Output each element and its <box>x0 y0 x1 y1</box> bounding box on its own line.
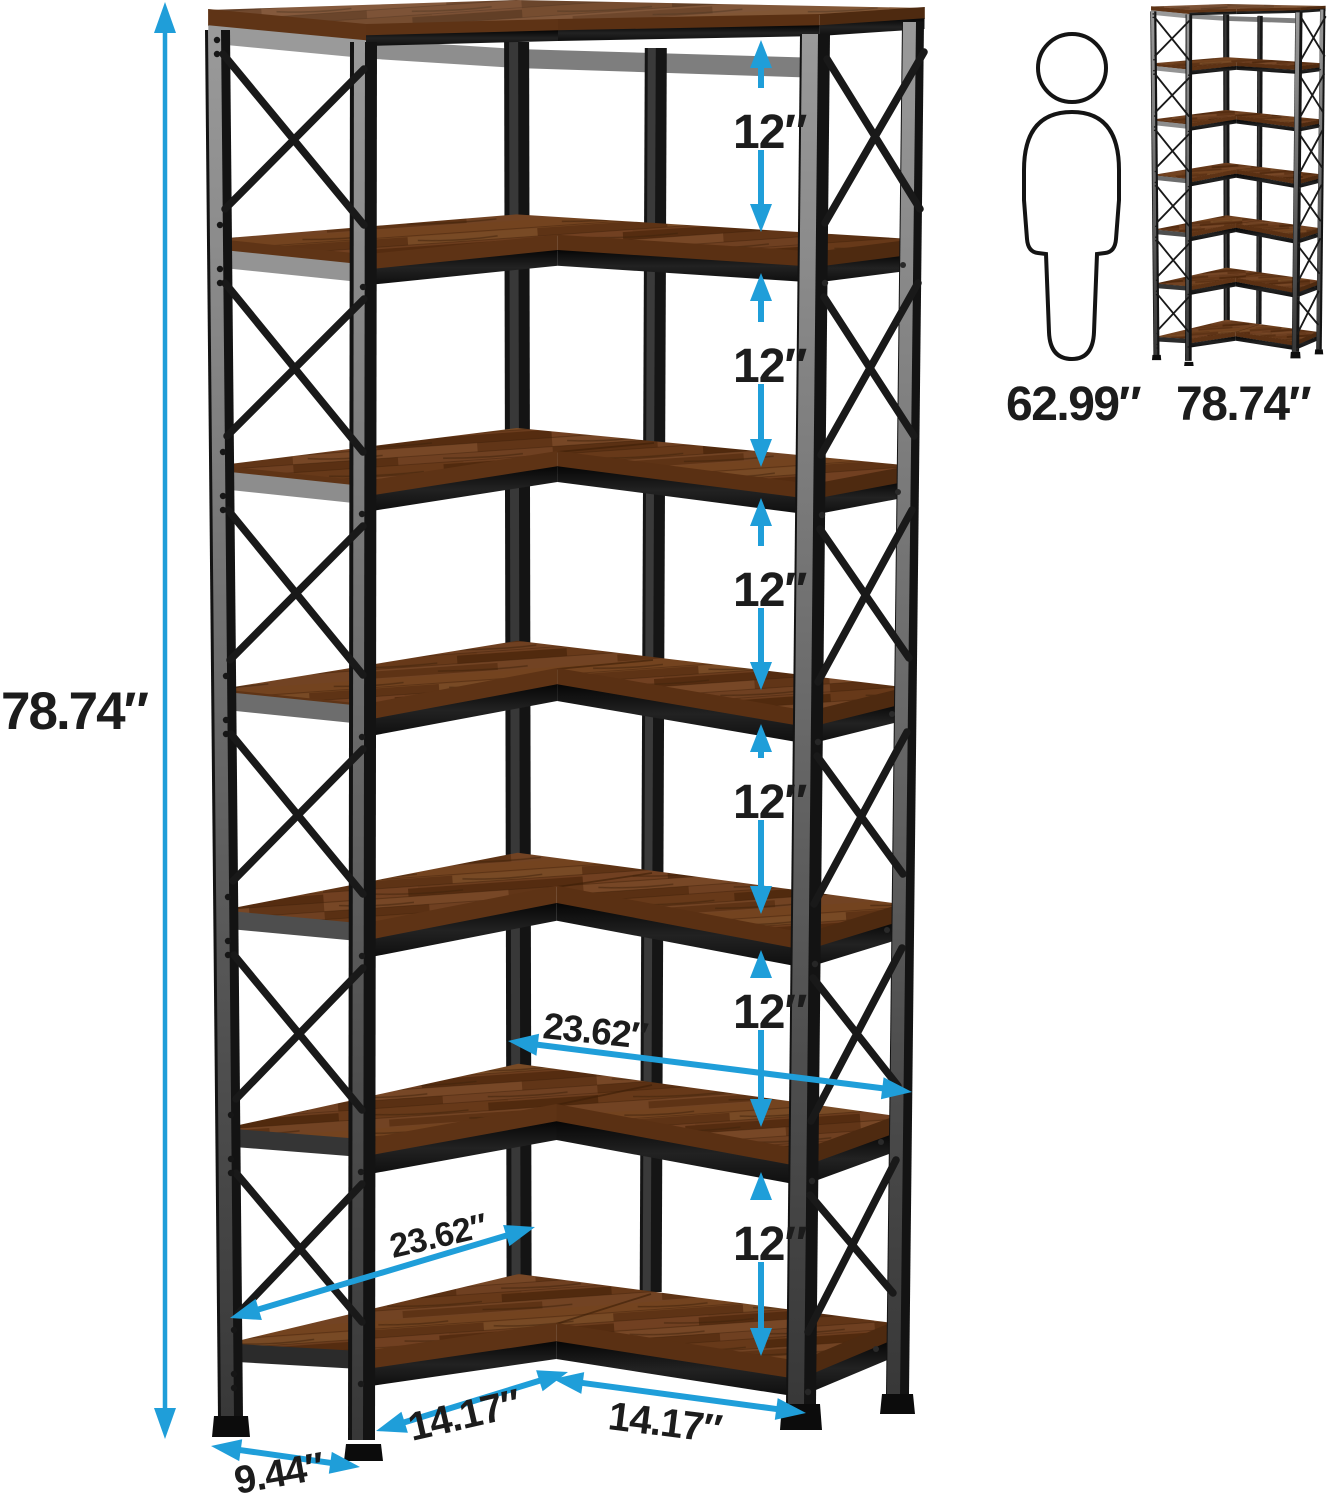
svg-text:62.99″: 62.99″ <box>1006 378 1142 431</box>
svg-text:12″: 12″ <box>733 776 807 829</box>
svg-text:12″: 12″ <box>733 106 807 159</box>
svg-text:12″: 12″ <box>733 564 807 617</box>
svg-text:12″: 12″ <box>733 1218 807 1271</box>
svg-text:12″: 12″ <box>733 986 807 1039</box>
svg-text:78.74″: 78.74″ <box>1176 378 1312 431</box>
svg-text:12″: 12″ <box>733 340 807 393</box>
svg-text:78.74″: 78.74″ <box>1 682 149 741</box>
